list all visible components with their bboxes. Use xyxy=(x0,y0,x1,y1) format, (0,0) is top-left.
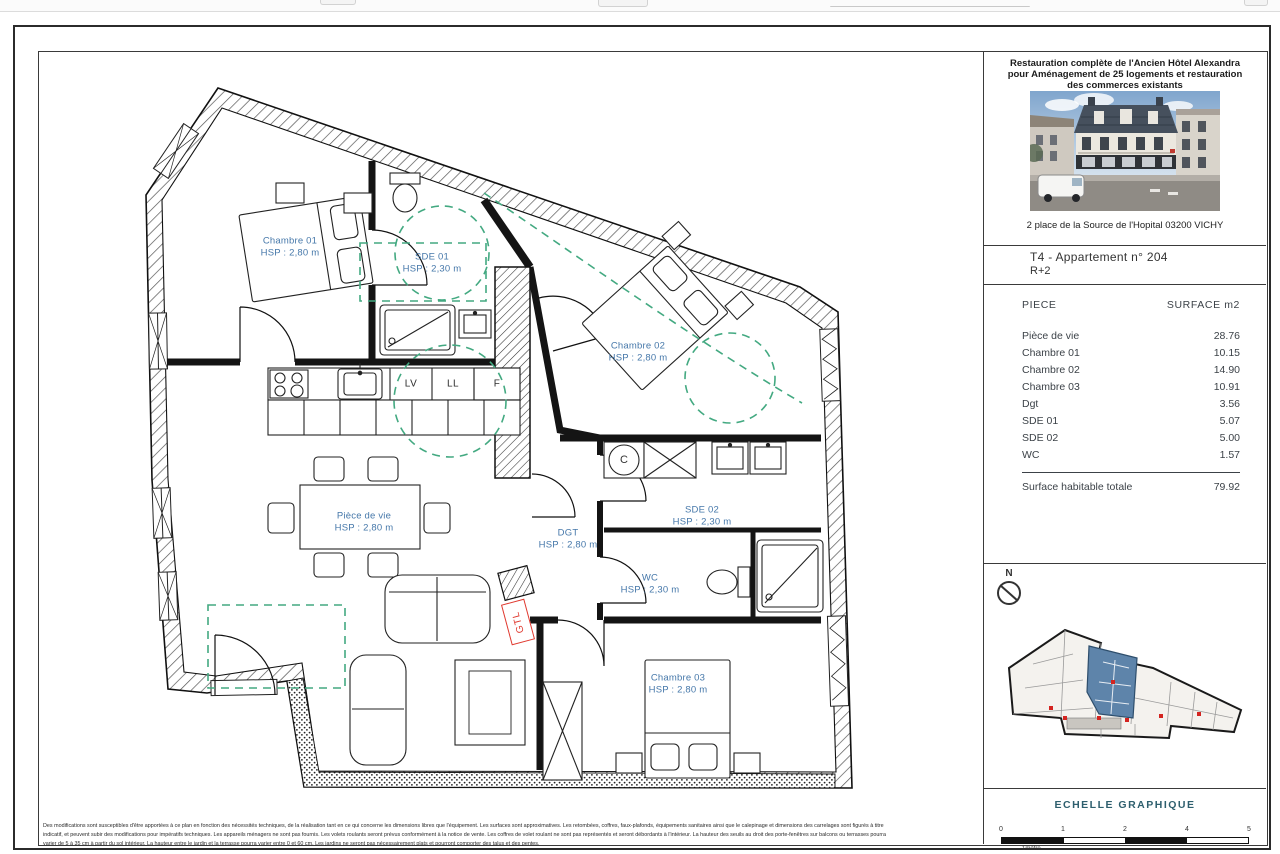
room-label-sde-02: SDE 02 HSP : 2,30 m xyxy=(673,505,732,530)
cell-piece: WC xyxy=(1022,447,1040,464)
graphic-scale-section: ECHELLE GRAPHIQUE 0 1 2 4 5 1mètre xyxy=(984,799,1266,854)
toilet-bowl xyxy=(393,184,417,212)
room-name: Chambre 01 xyxy=(263,236,317,247)
entry-duct xyxy=(498,566,534,601)
title-block-header: Restauration complète de l'Ancien Hôtel … xyxy=(984,51,1266,246)
floor-ref: R+2 xyxy=(1030,265,1266,277)
room-name: SDE 02 xyxy=(685,505,719,516)
scale-tick: 4 xyxy=(1185,826,1189,833)
toolbar-fragment xyxy=(320,0,356,5)
room-hsp: HSP : 2,30 m xyxy=(403,264,462,275)
scale-ticks: 0 1 2 4 5 xyxy=(1001,826,1249,835)
toolbar-fragment xyxy=(830,6,1030,7)
total-value: 79.92 xyxy=(1214,479,1240,496)
cell-piece: SDE 01 xyxy=(1022,413,1058,430)
compass-icon xyxy=(994,579,1024,607)
table-row: Chambre 0110.15 xyxy=(1022,345,1240,362)
key-plan xyxy=(1003,622,1248,760)
room-label-chambre-03: Chambre 03 HSP : 2,80 m xyxy=(649,673,708,698)
water-heater-label: C xyxy=(620,454,628,466)
disclaimer-line: indicatif, et peuvent subir des modifica… xyxy=(43,831,981,840)
floor-plan-drawing xyxy=(38,51,983,820)
cell-piece: SDE 02 xyxy=(1022,430,1058,447)
room-hsp: HSP : 2,80 m xyxy=(539,540,598,551)
table-row: Pièce de vie28.76 xyxy=(1022,328,1240,345)
scale-tick: 0 xyxy=(999,826,1003,833)
room-label-wc: WC HSP : 2,30 m xyxy=(621,573,680,598)
room-name: Chambre 03 xyxy=(651,673,705,684)
scale-bar xyxy=(1001,837,1249,844)
cell-piece: Chambre 02 xyxy=(1022,362,1080,379)
scale-tick: 1 xyxy=(1061,826,1065,833)
apartment-ref: T4 - Appartement n° 204 xyxy=(1030,250,1266,264)
table-row: Chambre 0214.90 xyxy=(1022,362,1240,379)
cell-surface: 3.56 xyxy=(1220,396,1240,413)
project-title-line: pour Aménagement de 25 logements et rest… xyxy=(984,69,1266,80)
col-surface: SURFACE m2 xyxy=(1167,297,1240,314)
room-hsp: HSP : 2,80 m xyxy=(609,353,668,364)
room-label-chambre-01: Chambre 01 HSP : 2,80 m xyxy=(261,236,320,261)
col-piece: PIECE xyxy=(1022,297,1057,314)
cell-surface: 10.15 xyxy=(1214,345,1240,362)
disclaimer-line: Des modifications sont susceptibles d'êt… xyxy=(43,822,981,831)
cell-surface: 5.00 xyxy=(1220,430,1240,447)
table-total-rule xyxy=(1022,472,1240,473)
toilet-tank xyxy=(738,567,750,597)
room-hsp: HSP : 2,30 m xyxy=(673,517,732,528)
project-address: 2 place de la Source de l'Hopital 03200 … xyxy=(984,220,1266,231)
toilet-bowl xyxy=(707,570,737,594)
floor-plan: Chambre 01 HSP : 2,80 m SDE 01 HSP : 2,3… xyxy=(38,51,983,820)
cell-piece: Pièce de vie xyxy=(1022,328,1079,345)
room-label-sde-01: SDE 01 HSP : 2,30 m xyxy=(403,252,462,277)
room-name: DGT xyxy=(558,528,579,539)
table-row: SDE 025.00 xyxy=(1022,430,1240,447)
scale-unit-label: 1mètre xyxy=(1022,846,1041,852)
project-title-line: des commerces existants xyxy=(984,80,1266,91)
room-hsp: HSP : 2,80 m xyxy=(649,685,708,696)
cell-surface: 10.91 xyxy=(1214,379,1240,396)
apartment-id-box: T4 - Appartement n° 204 R+2 xyxy=(984,246,1266,285)
cropped-toolbar-strip xyxy=(0,0,1280,12)
nightstand xyxy=(276,183,304,203)
table-row: Dgt3.56 xyxy=(1022,396,1240,413)
appliance-label-lv: LV xyxy=(405,379,418,390)
scale-tick: 5 xyxy=(1247,826,1251,833)
disclaimer-line: varier de 5 à 35 cm à partir du sol inté… xyxy=(43,840,981,849)
scale-title: ECHELLE GRAPHIQUE xyxy=(984,799,1266,811)
table-row: Chambre 0310.91 xyxy=(1022,379,1240,396)
room-hsp: HSP : 2,80 m xyxy=(261,248,320,259)
building-photo xyxy=(1030,91,1220,211)
cell-piece: Dgt xyxy=(1022,396,1038,413)
toolbar-fragment xyxy=(598,0,648,7)
room-label-dgt: DGT HSP : 2,80 m xyxy=(539,528,598,553)
surface-table: PIECE SURFACE m2 Pièce de vie28.76 Chamb… xyxy=(984,285,1266,564)
north-arrow: N xyxy=(992,568,1026,612)
north-label: N xyxy=(992,568,1026,579)
total-label: Surface habitable totale xyxy=(1022,479,1132,496)
kitchen-counter xyxy=(268,363,520,435)
room-name: Pièce de vie xyxy=(337,511,391,522)
surface-table-header: PIECE SURFACE m2 xyxy=(1022,297,1240,314)
disclaimer: Des modifications sont susceptibles d'êt… xyxy=(43,822,981,849)
sofa-single xyxy=(350,655,406,765)
table-total-row: Surface habitable totale 79.92 xyxy=(1022,479,1240,496)
room-name: SDE 01 xyxy=(415,252,449,263)
nightstand xyxy=(344,193,372,213)
toilet-tank xyxy=(390,173,420,184)
cell-piece: Chambre 01 xyxy=(1022,345,1080,362)
table-row: WC1.57 xyxy=(1022,447,1240,464)
scale-tick: 2 xyxy=(1123,826,1127,833)
cell-surface: 5.07 xyxy=(1220,413,1240,430)
project-title: Restauration complète de l'Ancien Hôtel … xyxy=(984,51,1266,92)
room-hsp: HSP : 2,30 m xyxy=(621,585,680,596)
room-name: Chambre 02 xyxy=(611,341,665,352)
gtl-label: GTL xyxy=(510,610,526,635)
room-hsp: HSP : 2,80 m xyxy=(335,523,394,534)
key-plan-section: N xyxy=(984,564,1266,789)
project-title-line: Restauration complète de l'Ancien Hôtel … xyxy=(984,58,1266,69)
cell-surface: 1.57 xyxy=(1220,447,1240,464)
cell-surface: 28.76 xyxy=(1214,328,1240,345)
title-block: Restauration complète de l'Ancien Hôtel … xyxy=(983,51,1266,844)
toolbar-fragment xyxy=(1244,0,1268,6)
room-label-piece-de-vie: Pièce de vie HSP : 2,80 m xyxy=(335,511,394,536)
coffee-table xyxy=(455,660,525,745)
appliance-label-f: F xyxy=(494,379,501,390)
room-label-chambre-02: Chambre 02 HSP : 2,80 m xyxy=(609,341,668,366)
table-row: SDE 015.07 xyxy=(1022,413,1240,430)
cell-piece: Chambre 03 xyxy=(1022,379,1080,396)
room-name: WC xyxy=(642,573,658,584)
appliance-label-ll: LL xyxy=(447,379,459,390)
cell-surface: 14.90 xyxy=(1214,362,1240,379)
